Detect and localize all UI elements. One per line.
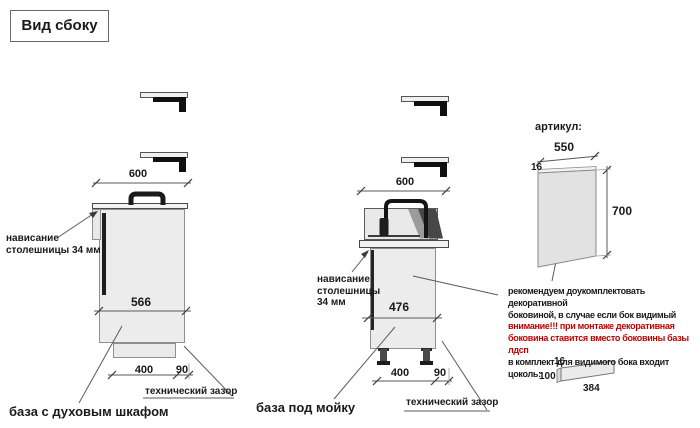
dim-tech-gap: 90	[165, 364, 199, 376]
left-unit-caption: база с духовым шкафом	[9, 404, 169, 419]
tech-gap-label: технический зазор	[145, 386, 237, 398]
dim-body-depth: 476	[382, 300, 416, 314]
dim-plinth-thickness: 16	[554, 356, 565, 367]
page-title: Вид сбоку	[21, 17, 97, 34]
dim-panel-width: 550	[547, 140, 581, 154]
artikul-heading: артикул:	[535, 121, 582, 133]
title-box: Вид сбоку	[10, 10, 109, 42]
dim-panel-thickness: 16	[531, 162, 542, 173]
note-line: боковиной, в случае если бок видимый	[508, 310, 700, 322]
dim-tech-gap: 90	[423, 367, 457, 379]
dim-panel-height: 700	[612, 204, 632, 218]
note-line: рекомендуем доукомплектовать декоративно…	[508, 286, 700, 310]
dim-plinth-depth: 400	[383, 367, 417, 379]
tech-gap-label: технический зазор	[406, 397, 498, 409]
side-view-drawing: Вид сбоку 600 566 400 90 нависание столе…	[0, 0, 700, 428]
dim-body-depth: 566	[124, 295, 158, 309]
dim-plinth-depth: 400	[127, 364, 161, 376]
overhang-label: нависание столешницы 34 мм	[6, 233, 101, 257]
arrowheads	[89, 211, 369, 258]
dim-top-width: 600	[121, 168, 155, 180]
note-text: рекомендуем доукомплектовать декоративно…	[508, 286, 700, 380]
dim-plinth-length: 384	[583, 383, 600, 394]
side-panel-drawing	[538, 167, 596, 268]
overhang-label: нависание столешницы 34 мм	[317, 274, 380, 309]
note-line-warning: внимание!!! при монтаже декоративная	[508, 321, 700, 333]
dim-top-width: 600	[388, 176, 422, 188]
dim-plinth-height: 100	[539, 371, 556, 382]
middle-unit-caption: база под мойку	[256, 400, 355, 415]
oven-handle-icon	[131, 194, 163, 205]
note-line: в комплект для видимого бока входит цоко…	[508, 357, 700, 381]
note-line-warning: боковина ставится вместо боковины базы л…	[508, 333, 700, 357]
